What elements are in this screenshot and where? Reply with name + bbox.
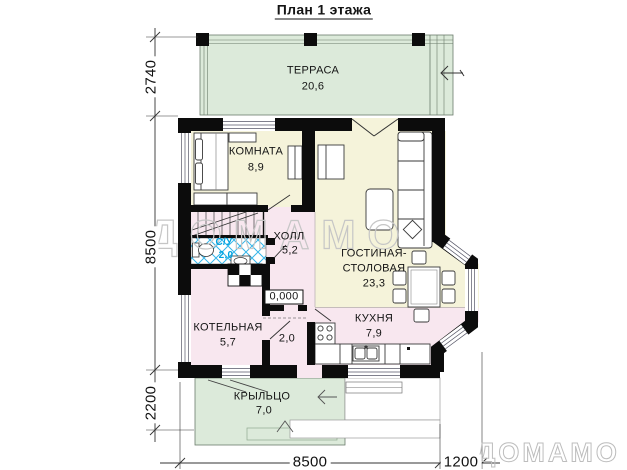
tv-stand-icon <box>318 145 344 179</box>
page-title: План 1 этажа <box>275 3 373 20</box>
chair-icon <box>442 271 455 285</box>
room-area-porch: 7,0 <box>256 406 272 417</box>
room-area-terrace: 20,6 <box>302 82 325 93</box>
room-label-bathroom: С/У <box>215 238 232 248</box>
dresser-icon <box>194 193 227 205</box>
porch-deck <box>195 378 440 445</box>
elevation-mark: 0,000 <box>264 290 303 305</box>
room-label-living-1: ГОСТИНАЯ- <box>341 249 407 260</box>
room-label-porch: КРЫЛЬЦО <box>234 392 290 403</box>
room-area-living: 23,3 <box>363 279 386 290</box>
dim-left-terrace: 2740 <box>144 57 159 98</box>
room-label-living-2: СТОЛОВАЯ <box>343 264 406 275</box>
room-area-room: 8,9 <box>248 163 264 174</box>
floor-plan-page: ДОМАМО ДОМАМО План 1 этажа ТЕРРАСА 20,6 … <box>0 0 627 470</box>
room-area-hall: 5,2 <box>282 246 298 257</box>
dim-left-house: 8500 <box>144 227 159 268</box>
bay-window-right <box>465 269 478 311</box>
chair-icon <box>393 289 406 303</box>
room-label-terrace: ТЕРРАСА <box>287 66 339 77</box>
room-area-kitchen: 7,9 <box>366 329 382 340</box>
room-area-boiler: 5,7 <box>220 338 236 349</box>
dim-bottom-bay: 1200 <box>441 455 482 470</box>
room-area-bathroom: 2,0 <box>219 251 234 261</box>
room-label-kitchen: КУХНЯ <box>355 314 393 325</box>
nightstand-icon <box>229 133 256 142</box>
room-area-vestibule: 2,0 <box>279 334 295 345</box>
chair-icon <box>412 251 426 264</box>
watermark-corner: ДОМАМО <box>476 438 620 469</box>
vent-shaft <box>228 264 262 286</box>
chair-icon <box>414 309 429 322</box>
room-label-hall: ХОЛЛ <box>273 232 304 243</box>
porch-door-opening <box>297 365 322 378</box>
dim-bottom-house: 8500 <box>290 455 331 470</box>
dining-table-icon <box>408 267 440 307</box>
chair-icon <box>442 289 455 303</box>
stove-icon <box>315 323 335 344</box>
dim-left-porch: 2200 <box>144 383 159 424</box>
room-label-boiler: КОТЕЛЬНАЯ <box>193 323 262 334</box>
room-label-room: КОМНАТА <box>229 147 283 158</box>
